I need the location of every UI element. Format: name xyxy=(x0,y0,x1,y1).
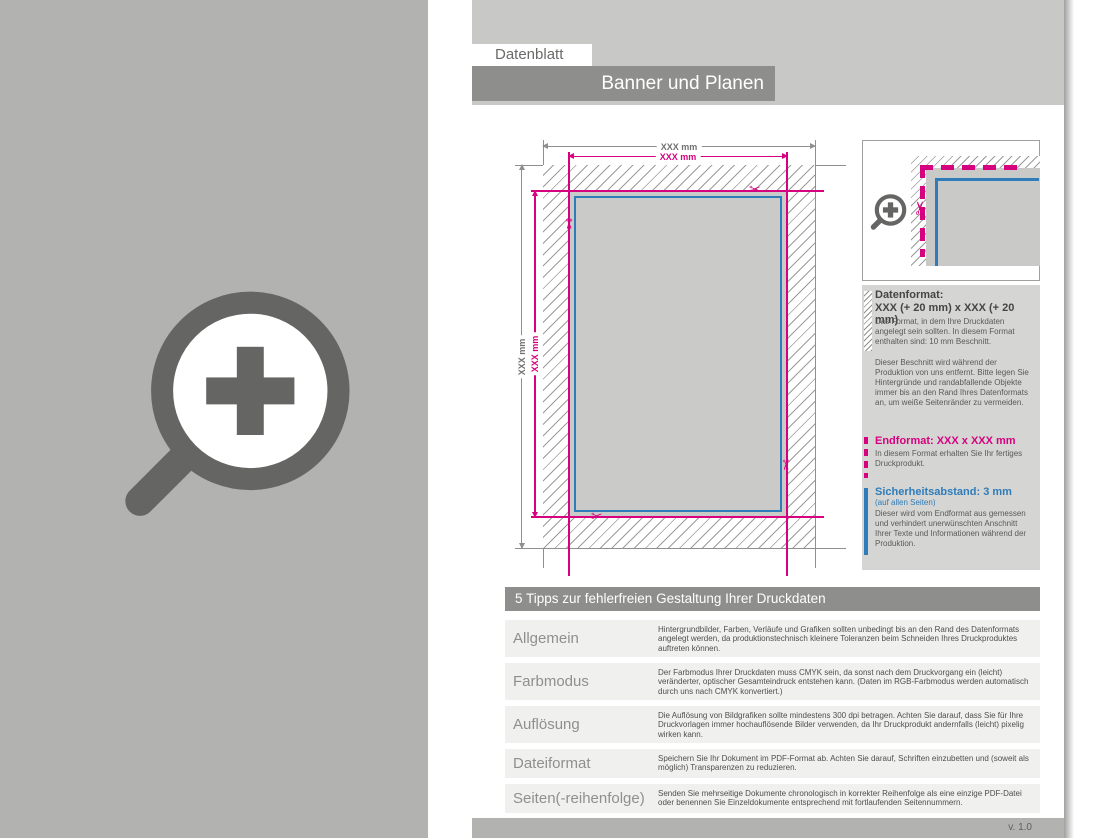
tip-label: Auflösung xyxy=(505,706,658,743)
sicherheitsabstand-sub: (auf allen Seiten) xyxy=(875,498,1035,508)
scissors-icon: ✂ xyxy=(914,200,928,215)
table-row: Dateiformat Speichern Sie Ihr Dokument i… xyxy=(505,749,1040,778)
format-diagram: XXX mm XXX mm XXX mm XXX mm ✂ ✂ ✂ ✂ xyxy=(517,138,849,578)
arrowhead xyxy=(519,543,525,549)
tip-text: Senden Sie mehrseitige Dokumente chronol… xyxy=(658,784,1040,813)
crop-line-bottom xyxy=(515,548,846,549)
outer-width-label: XXX mm xyxy=(657,142,702,152)
cut-line-bottom xyxy=(531,516,824,518)
table-row: Seiten(-reihenfolge) Senden Sie mehrseit… xyxy=(505,784,1040,813)
tip-text: Speichern Sie Ihr Dokument im PDF-Format… xyxy=(658,749,1040,778)
sicherheitsabstand-body: Dieser wird vom Endformat aus gemessen u… xyxy=(875,509,1035,549)
dimension-outer-width: XXX mm xyxy=(543,146,815,147)
detail-safety-line-vertical xyxy=(935,178,938,266)
corner-detail-box: ✂ xyxy=(862,140,1040,281)
zoom-plus-icon xyxy=(118,288,363,533)
inner-width-label: XXX mm xyxy=(656,152,701,162)
tip-text: Hintergrundbilder, Farben, Verläufe und … xyxy=(658,620,1040,657)
arrowhead xyxy=(532,190,538,196)
outer-height-label: XXX mm xyxy=(517,335,527,378)
cut-line-top xyxy=(531,190,824,192)
dimension-inner-width: XXX mm xyxy=(569,156,787,157)
endformat-heading: Endformat: XXX x XXX mm xyxy=(875,435,1035,447)
tip-label: Allgemein xyxy=(505,620,658,657)
bleed-hatch-marker xyxy=(864,291,872,351)
scissors-icon: ✂ xyxy=(562,218,576,230)
safety-line-marker xyxy=(864,488,868,555)
format-info-panel: Datenformat: XXX (+ 20 mm) x XXX (+ 20 m… xyxy=(862,285,1040,570)
table-row: Allgemein Hintergrundbilder, Farben, Ver… xyxy=(505,620,1040,657)
arrowhead xyxy=(519,164,525,170)
arrowhead xyxy=(532,512,538,518)
tips-table: 5 Tipps zur fehlerfreien Gestaltung Ihre… xyxy=(505,587,1040,813)
tip-label: Dateiformat xyxy=(505,749,658,778)
page-shadow xyxy=(1064,0,1074,838)
table-row: Farbmodus Der Farbmodus Ihrer Druckdaten… xyxy=(505,663,1040,700)
scissors-icon: ✂ xyxy=(749,182,761,196)
dimension-outer-height: XXX mm xyxy=(521,165,522,548)
cut-line-left xyxy=(568,152,570,576)
datasheet-page: Datenblatt Banner und Planen XXX mm XXX … xyxy=(462,0,1064,838)
detail-safety-line-horizontal xyxy=(935,178,1039,181)
arrowhead xyxy=(810,143,816,149)
arrowhead xyxy=(542,143,548,149)
scissors-icon: ✂ xyxy=(779,459,793,471)
scissors-icon: ✂ xyxy=(591,509,603,523)
detail-cut-line-horizontal xyxy=(920,165,1020,170)
datenformat-body2: Dieser Beschnitt wird während der Produk… xyxy=(875,358,1035,408)
page-tab: Datenblatt xyxy=(462,44,592,66)
endformat-body: In diesem Format erhalten Sie Ihr fertig… xyxy=(875,449,1035,469)
page-title: Banner und Planen xyxy=(472,66,775,101)
tips-header: 5 Tipps zur fehlerfreien Gestaltung Ihre… xyxy=(505,587,1040,611)
datenformat-body: Das Format, in dem Ihre Druckdaten angel… xyxy=(875,317,1035,347)
tip-label: Seiten(-reihenfolge) xyxy=(505,784,658,813)
arrowhead xyxy=(568,153,574,159)
inner-height-label: XXX mm xyxy=(530,333,540,376)
table-row: Auflösung Die Auflösung von Bildgrafiken… xyxy=(505,706,1040,743)
cut-line-marker xyxy=(864,437,868,478)
zoom-plus-icon-small xyxy=(870,194,908,232)
safety-margin-rect xyxy=(574,196,782,512)
tip-label: Farbmodus xyxy=(505,663,658,700)
tip-text: Die Auflösung von Bildgrafiken sollte mi… xyxy=(658,706,1040,743)
crop-line-right xyxy=(815,140,816,568)
cut-line-right xyxy=(786,152,788,576)
dimension-inner-height: XXX mm xyxy=(534,191,536,517)
version-footer: v. 1.0 xyxy=(472,818,1064,838)
sicherheitsabstand-heading: Sicherheitsabstand: 3 mm xyxy=(875,486,1035,498)
detail-endformat-fill xyxy=(926,168,1040,266)
arrowhead xyxy=(782,153,788,159)
datenformat-heading: Datenformat: xyxy=(875,289,1035,301)
tip-text: Der Farbmodus Ihrer Druckdaten muss CMYK… xyxy=(658,663,1040,700)
